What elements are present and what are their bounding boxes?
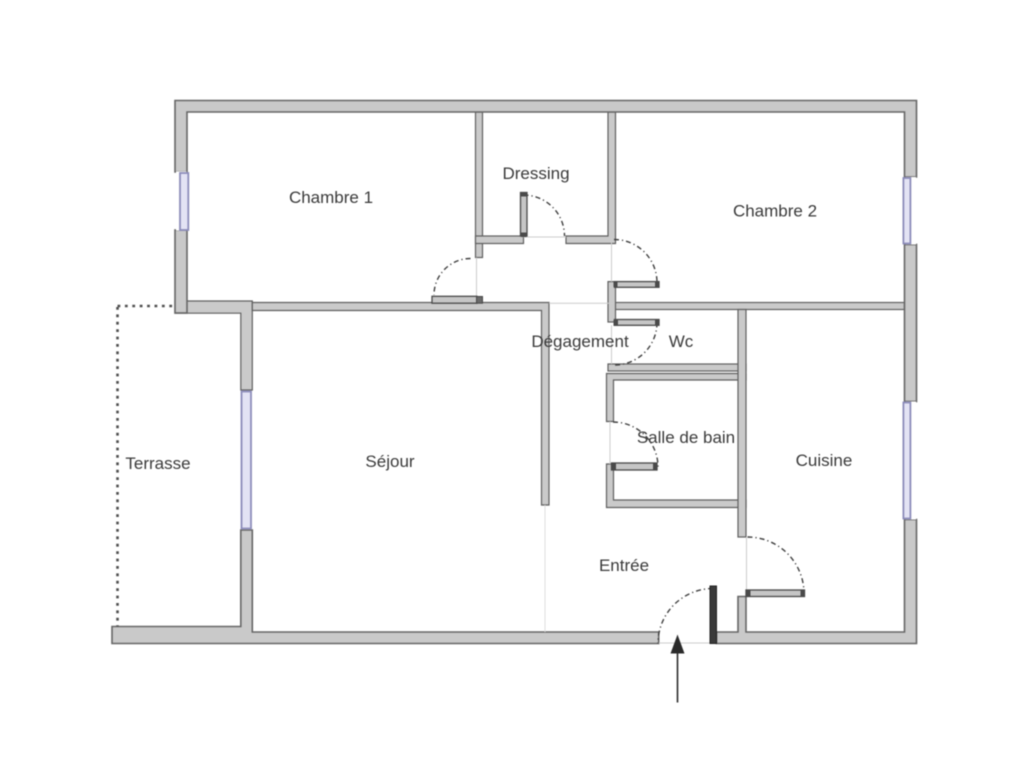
svg-text:Dégagement: Dégagement (531, 332, 629, 351)
svg-text:Salle de bain: Salle de bain (637, 428, 735, 447)
svg-text:Dressing: Dressing (502, 164, 569, 183)
svg-text:Cuisine: Cuisine (796, 451, 853, 470)
svg-text:Séjour: Séjour (365, 452, 414, 471)
svg-text:Wc: Wc (669, 332, 694, 351)
svg-text:Entrée: Entrée (599, 556, 649, 575)
svg-text:Chambre 1: Chambre 1 (289, 188, 373, 207)
svg-text:Terrasse: Terrasse (125, 454, 190, 473)
svg-text:Chambre 2: Chambre 2 (733, 202, 817, 221)
